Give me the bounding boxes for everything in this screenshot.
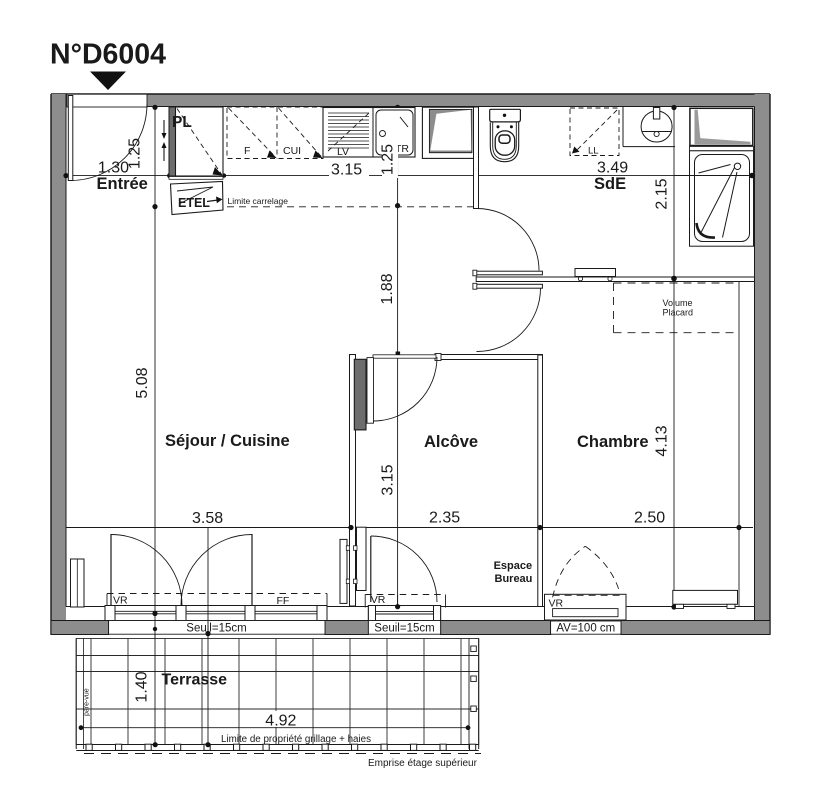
- svg-text:VR: VR: [371, 594, 386, 606]
- svg-text:3.15: 3.15: [331, 162, 362, 179]
- svg-text:LV: LV: [337, 146, 349, 158]
- svg-text:CUI: CUI: [283, 145, 301, 157]
- svg-text:SdE: SdE: [594, 175, 626, 193]
- svg-text:2.50: 2.50: [634, 510, 665, 527]
- svg-text:Volume: Volume: [663, 298, 693, 308]
- svg-text:FF: FF: [277, 595, 290, 607]
- svg-text:5.08: 5.08: [134, 367, 151, 398]
- svg-text:Seuil=15cm: Seuil=15cm: [186, 623, 246, 635]
- svg-text:Limite carrelage: Limite carrelage: [228, 196, 289, 206]
- svg-text:Bureau: Bureau: [495, 573, 533, 585]
- svg-text:Seuil=15cm: Seuil=15cm: [374, 623, 434, 635]
- svg-text:3.15: 3.15: [380, 464, 397, 495]
- svg-text:4.13: 4.13: [654, 425, 671, 456]
- svg-text:PL: PL: [172, 114, 192, 131]
- svg-text:1.40: 1.40: [134, 671, 151, 702]
- svg-text:ETEL: ETEL: [178, 196, 210, 210]
- svg-text:Limite de propriété grillage +: Limite de propriété grillage + haies: [221, 734, 371, 745]
- svg-text:pare-vue: pare-vue: [84, 688, 91, 716]
- svg-text:1.30: 1.30: [98, 160, 129, 177]
- svg-text:F: F: [244, 145, 250, 157]
- svg-text:1.88: 1.88: [379, 273, 396, 304]
- svg-text:N°D6004: N°D6004: [50, 39, 166, 71]
- svg-text:1.25: 1.25: [380, 144, 397, 175]
- svg-text:1.25: 1.25: [127, 138, 144, 169]
- svg-text:Entrée: Entrée: [97, 175, 148, 193]
- svg-text:VR: VR: [549, 598, 564, 610]
- svg-text:3.58: 3.58: [192, 510, 223, 527]
- svg-text:Chambre: Chambre: [577, 433, 649, 451]
- svg-text:Terrasse: Terrasse: [162, 672, 228, 689]
- svg-text:2.15: 2.15: [654, 178, 671, 209]
- svg-text:2.35: 2.35: [429, 510, 460, 527]
- svg-text:Espace: Espace: [494, 560, 533, 572]
- svg-text:3.49: 3.49: [597, 160, 628, 177]
- svg-text:Alcôve: Alcôve: [424, 433, 478, 451]
- svg-text:Placard: Placard: [663, 308, 694, 318]
- svg-text:VR: VR: [113, 595, 128, 607]
- svg-text:AV=100 cm: AV=100 cm: [556, 623, 615, 635]
- svg-text:LL: LL: [588, 146, 599, 157]
- svg-text:Séjour / Cuisine: Séjour / Cuisine: [165, 432, 290, 450]
- svg-text:Emprise étage supérieur: Emprise étage supérieur: [368, 758, 478, 769]
- svg-text:4.92: 4.92: [265, 713, 296, 730]
